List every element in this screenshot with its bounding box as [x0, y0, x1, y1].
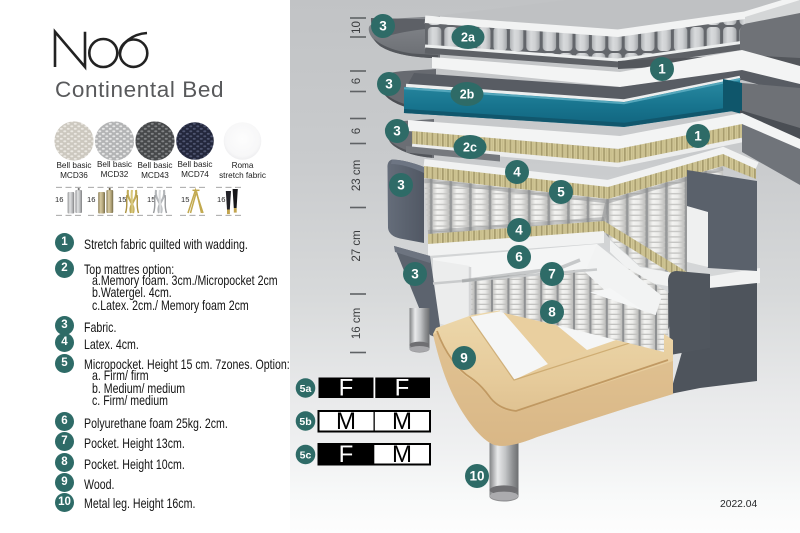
svg-text:6: 6 [515, 250, 523, 265]
svg-text:F: F [395, 375, 410, 402]
svg-text:F: F [339, 441, 354, 468]
svg-text:16: 16 [217, 195, 225, 204]
svg-text:16 cm: 16 cm [351, 308, 363, 339]
svg-text:M: M [392, 441, 412, 468]
svg-text:3: 3 [411, 267, 419, 282]
svg-text:3: 3 [397, 178, 405, 193]
svg-text:M: M [392, 408, 412, 435]
svg-text:4: 4 [513, 165, 521, 180]
svg-text:2022.04: 2022.04 [720, 499, 757, 510]
svg-text:7: 7 [548, 267, 556, 282]
svg-text:15: 15 [118, 195, 126, 204]
svg-text:5b: 5b [299, 416, 311, 428]
svg-text:3: 3 [379, 19, 387, 34]
svg-text:2b: 2b [460, 88, 475, 102]
svg-text:6: 6 [351, 128, 363, 134]
svg-text:5: 5 [557, 185, 565, 200]
svg-text:15: 15 [181, 195, 189, 204]
svg-text:M: M [336, 408, 356, 435]
svg-text:6: 6 [351, 78, 363, 84]
svg-text:16: 16 [87, 195, 95, 204]
svg-text:5a: 5a [300, 383, 312, 395]
svg-text:3: 3 [393, 124, 401, 139]
svg-text:2c: 2c [463, 141, 477, 155]
svg-text:10: 10 [351, 21, 363, 34]
svg-text:F: F [339, 375, 354, 402]
svg-text:5c: 5c [300, 450, 312, 462]
svg-text:16: 16 [55, 195, 63, 204]
svg-text:10: 10 [469, 469, 484, 484]
svg-text:2a: 2a [461, 31, 476, 45]
svg-text:27 cm: 27 cm [351, 230, 363, 261]
svg-text:9: 9 [460, 351, 468, 366]
svg-text:8: 8 [548, 305, 556, 320]
svg-text:3: 3 [385, 77, 393, 92]
svg-text:1: 1 [694, 129, 702, 144]
svg-text:1: 1 [658, 62, 666, 77]
svg-text:23 cm: 23 cm [351, 160, 363, 191]
svg-text:4: 4 [515, 223, 523, 238]
